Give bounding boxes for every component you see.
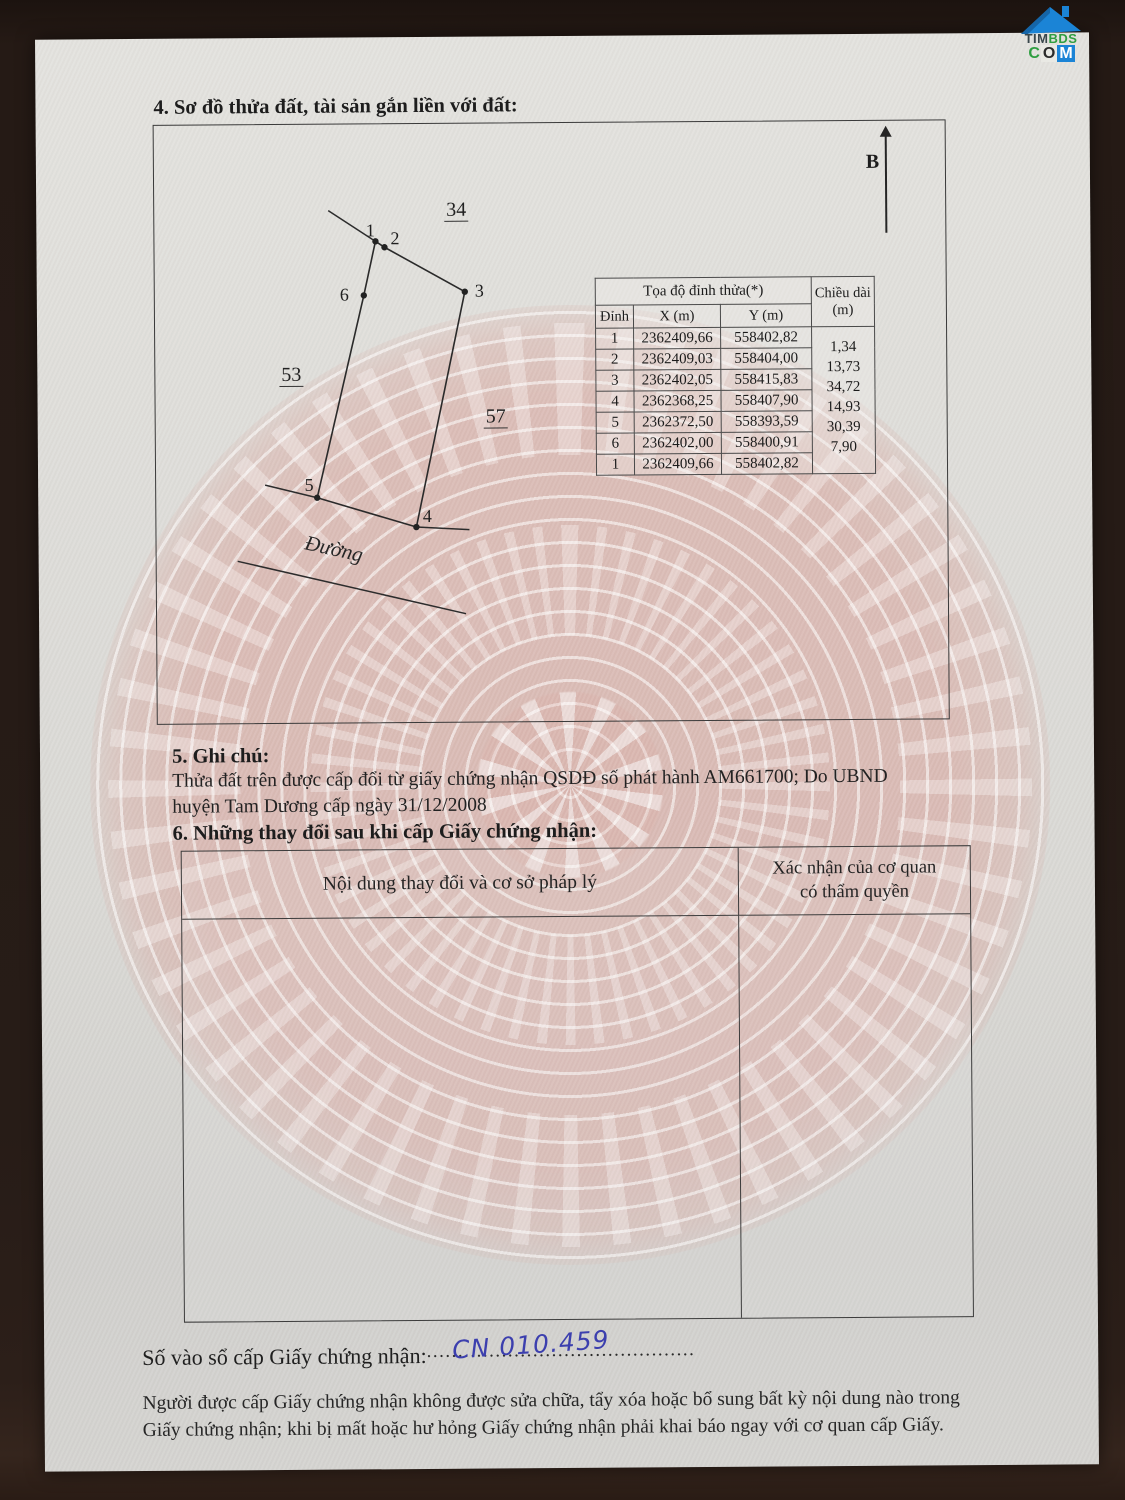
photographed-certificate: 4. Sơ đồ thửa đất, tài sản gắn liền với … <box>0 0 1125 1500</box>
adjacent-parcel-57: 57 <box>484 406 508 428</box>
timbds-watermark-logo: TIMBDS COM <box>1008 3 1094 63</box>
cell-x: 2362368,25 <box>634 390 721 412</box>
logo-bds: BDS <box>1048 31 1077 46</box>
coord-table-title: Tọa độ đỉnh thửa(*) <box>595 277 811 306</box>
length-value: 30,39 <box>813 417 875 437</box>
road-edge-right <box>416 527 469 530</box>
cell-x: 2362409,66 <box>634 327 721 349</box>
cell-vertex: 4 <box>596 391 634 412</box>
cell-vertex: 2 <box>596 349 634 370</box>
registry-number-line: Số vào sổ cấp Giấy chứng nhận:..........… <box>142 1339 695 1371</box>
footer-note-line2: Giấy chứng nhận; khi bị mất hoặc hư hỏng… <box>143 1414 944 1442</box>
cell-x: 2362409,66 <box>634 453 721 475</box>
cell-vertex: 1 <box>596 328 634 349</box>
vertex-label-3: 3 <box>475 281 484 301</box>
length-value: 1,34 <box>812 337 874 357</box>
changes-table-right-header: Xác nhận của cơ quan có thẩm quyền <box>739 846 970 916</box>
cell-y: 558400,91 <box>721 432 812 454</box>
vertex-label-6: 6 <box>340 285 349 305</box>
vertex-dot-6 <box>361 292 367 298</box>
cell-x: 2362409,03 <box>634 348 721 370</box>
vertex-dot-3 <box>462 288 468 294</box>
logo-text-line1: TIMBDS <box>1008 33 1094 44</box>
length-value: 7,90 <box>813 437 875 457</box>
logo-text-line2: COM <box>1008 45 1094 63</box>
cell-y: 558402,82 <box>721 453 812 475</box>
changes-table: Nội dung thay đổi và cơ sở pháp lý Xác n… <box>181 845 974 1323</box>
cell-vertex: 1 <box>596 454 634 475</box>
registry-number-label: Số vào sổ cấp Giấy chứng nhận: <box>142 1343 427 1370</box>
length-value: 34,72 <box>812 377 874 397</box>
section5-note-line2: huyện Tam Dương cấp ngày 31/12/2008 <box>172 795 486 819</box>
length-value: 14,93 <box>813 397 875 417</box>
section5-note-line1: Thửa đất trên được cấp đổi từ giấy chứng… <box>172 766 888 793</box>
cell-y: 558407,90 <box>721 390 812 412</box>
coord-table-y-header: Y (m) <box>720 304 811 328</box>
vertex-label-2: 2 <box>390 228 399 248</box>
length-value: 13,73 <box>812 357 874 377</box>
logo-letter-m: M <box>1057 45 1074 62</box>
cell-y: 558393,59 <box>721 411 812 433</box>
cell-vertex: 5 <box>596 412 634 433</box>
footer-note-line1: Người được cấp Giấy chứng nhận không đượ… <box>142 1387 959 1415</box>
table-row: 1 2362409,66 558402,82 1,34 13,73 34,72 … <box>596 326 875 349</box>
right-header-line1: Xác nhận của cơ quan <box>772 857 936 881</box>
parcel-polygon <box>315 241 466 528</box>
logo-tim: TIM <box>1025 31 1049 46</box>
adjacent-parcel-34: 34 <box>444 200 468 222</box>
vertex-dot-2 <box>381 244 387 250</box>
length-header-line2: (m) <box>812 301 874 318</box>
vertex-dot-5 <box>314 495 320 501</box>
cell-x: 2362402,00 <box>634 432 721 454</box>
cell-vertex: 3 <box>596 370 634 391</box>
cell-vertex: 6 <box>596 433 634 454</box>
section6-title: 6. Những thay đổi sau khi cấp Giấy chứng… <box>172 820 597 846</box>
adjacent-parcel-53: 53 <box>279 365 303 387</box>
logo-letter-c: C <box>1027 45 1041 62</box>
cell-y: 558402,82 <box>721 327 812 349</box>
changes-table-right-body <box>739 914 973 1318</box>
vertex-coordinates-table: Tọa độ đỉnh thửa(*) Chiều dài (m) Đỉnh X… <box>595 276 876 476</box>
north-label: B <box>866 151 880 174</box>
cell-y: 558404,00 <box>721 348 812 370</box>
section5-title: 5. Ghi chú: <box>172 745 270 769</box>
vertex-label-4: 4 <box>423 506 432 526</box>
vertex-label-5: 5 <box>305 475 314 495</box>
changes-table-left-header: Nội dung thay đổi và cơ sở pháp lý <box>182 848 739 920</box>
vertex-dot-4 <box>413 524 419 530</box>
certificate-page: 4. Sơ đồ thửa đất, tài sản gắn liền với … <box>35 32 1099 1471</box>
right-header-line2: có thẩm quyền <box>800 880 909 904</box>
length-header-line1: Chiều dài <box>812 285 874 302</box>
logo-letter-o: O <box>1041 45 1057 62</box>
cell-x: 2362402,05 <box>634 369 721 391</box>
road-far-edge <box>238 560 466 616</box>
cell-y: 558415,83 <box>721 369 812 391</box>
length-values-cell: 1,34 13,73 34,72 14,93 30,39 7,90 <box>812 326 876 473</box>
coord-table-vertex-header: Đỉnh <box>595 305 633 328</box>
coord-table-x-header: X (m) <box>633 304 720 328</box>
cell-x: 2362372,50 <box>634 411 721 433</box>
coord-table-length-header: Chiều dài (m) <box>811 276 874 326</box>
section4-title: 4. Sơ đồ thửa đất, tài sản gắn liền với … <box>153 94 517 120</box>
changes-table-left-body <box>182 916 742 1322</box>
vertex-label-1: 1 <box>366 220 375 240</box>
